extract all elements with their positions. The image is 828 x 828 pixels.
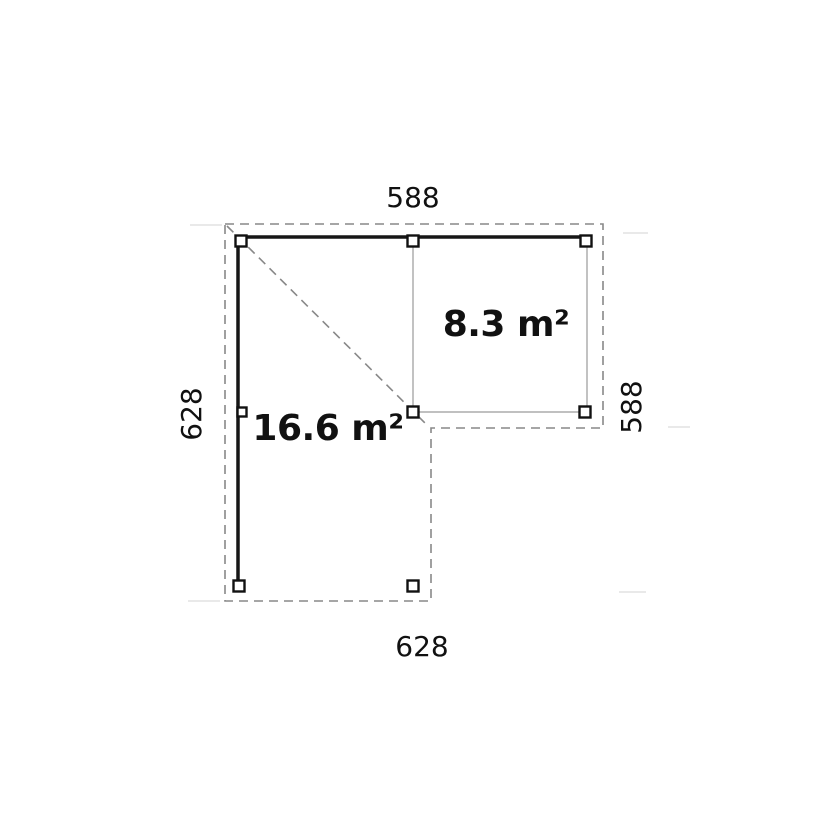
dimension-top-label: 588 bbox=[386, 181, 439, 214]
post-right-middle bbox=[580, 407, 591, 418]
post-inner-corner bbox=[408, 407, 419, 418]
area-label-secondary: 8.3 m² bbox=[443, 304, 570, 345]
floor-plan-page: 588 628 628 588 16.6 m² 8.3 m² bbox=[0, 0, 828, 828]
post-left-middle bbox=[238, 408, 247, 417]
post-top-middle bbox=[408, 236, 419, 247]
area-label-main: 16.6 m² bbox=[252, 408, 403, 449]
dimension-right-label: 588 bbox=[615, 380, 648, 433]
post-top-right bbox=[581, 236, 592, 247]
post-bottom-middle bbox=[408, 581, 419, 592]
post-bottom-left bbox=[234, 581, 245, 592]
diagonal-brace-dashed bbox=[227, 226, 429, 427]
post-top-left bbox=[236, 236, 247, 247]
floor-plan-drawing: 588 628 628 588 16.6 m² 8.3 m² bbox=[0, 0, 828, 828]
dimension-left-label: 628 bbox=[175, 387, 208, 440]
dimension-bottom-label: 628 bbox=[395, 630, 448, 663]
